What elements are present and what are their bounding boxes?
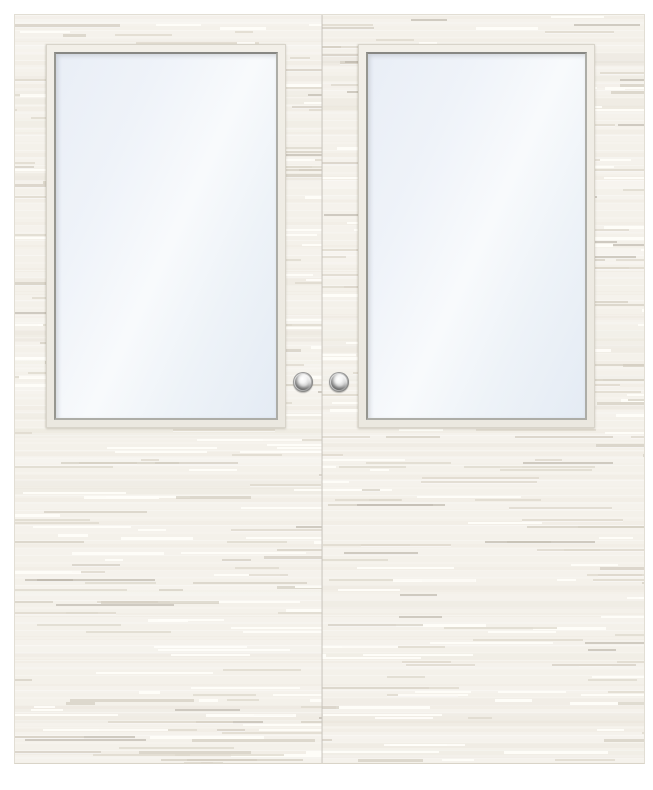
- window-glass: [366, 52, 587, 420]
- door-left-knob[interactable]: [293, 372, 313, 392]
- door-right-window: [358, 44, 595, 428]
- door-left-panel[interactable]: [15, 15, 322, 763]
- door-right-panel[interactable]: [322, 15, 644, 763]
- door-left-window: [46, 44, 286, 428]
- double-door: [14, 14, 645, 764]
- door-right-knob[interactable]: [329, 372, 349, 392]
- door-seam: [321, 15, 323, 763]
- window-glass: [54, 52, 278, 420]
- door-scene: [0, 0, 653, 790]
